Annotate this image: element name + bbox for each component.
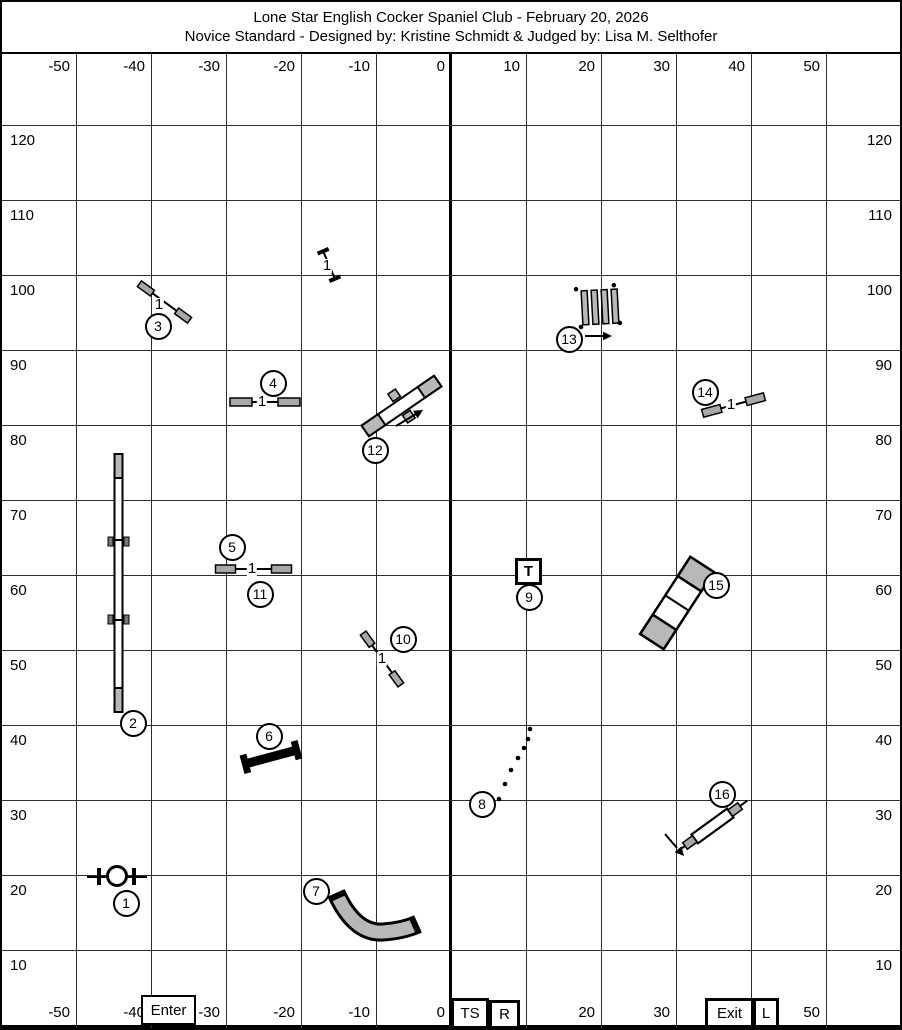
spare-jump-bar-count: 1 [322,259,332,273]
enter-box: Enter [141,995,196,1025]
obstacle-1-number: 1 [113,890,140,917]
obstacle-14-number: 14 [692,379,719,406]
course-map-page: Lone Star English Cocker Spaniel Club - … [0,0,902,1030]
double-jump-16 [665,796,751,856]
jump-5-bar-count: 1 [247,562,257,576]
dog-walk [108,454,129,712]
jump-14-bar-count: 1 [726,398,736,412]
exit-label: Exit [717,1005,742,1022]
obstacle-6-number: 6 [256,723,283,750]
left-box: L [753,998,779,1028]
jump-10-bar-count: 1 [377,652,387,666]
obstacle-10-number: 10 [390,626,417,653]
tire-jump [87,867,147,886]
obstacle-16-number: 16 [709,781,736,808]
tunnel-15 [640,557,714,649]
left-label: L [762,1005,770,1022]
teeter-12 [355,367,447,446]
weave-poles-8 [497,727,533,802]
obstacle-15-number: 15 [703,572,730,599]
course-svg [2,2,902,1030]
obstacle-13-number: 13 [556,326,583,353]
obstacle-8-number: 8 [469,791,496,818]
obstacle-11-number: 11 [247,581,274,608]
direction-arrow [585,332,612,340]
obstacle-7-number: 7 [303,878,330,905]
obstacle-3-number: 3 [145,313,172,340]
obstacle-5-number: 5 [219,534,246,561]
timer-start-box: TS [451,998,489,1029]
timer-start-label: TS [460,1005,479,1022]
obstacle-12-number: 12 [362,437,389,464]
obstacle-9-number: 9 [516,584,543,611]
direction-arrow [665,834,684,856]
right-label: R [499,1006,510,1023]
obstacle-2-number: 2 [120,710,147,737]
jump-4-bar-count: 1 [257,395,267,409]
jump-3-bar-count: 1 [154,298,164,312]
table-obstacle: T [515,558,542,585]
table-label: T [524,563,533,580]
right-box: R [489,1000,520,1029]
enter-label: Enter [151,1002,187,1019]
tunnel-7 [336,893,418,932]
exit-box: Exit [705,998,754,1028]
